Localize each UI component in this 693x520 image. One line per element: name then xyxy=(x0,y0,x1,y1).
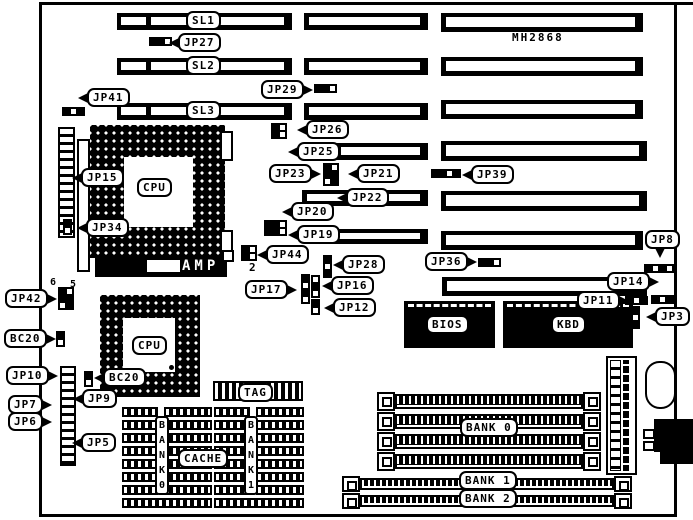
pointer-jp3 xyxy=(646,312,656,322)
jumper-pin xyxy=(64,227,71,234)
jumper-pin xyxy=(312,290,319,297)
callout-kbd-label: KBD xyxy=(551,315,586,334)
jumper-pin xyxy=(493,259,500,266)
cache-chip xyxy=(256,420,304,430)
jumper-pin xyxy=(302,275,309,282)
pin-number-6: 6 xyxy=(50,277,56,288)
cache-chip xyxy=(256,446,304,456)
cache-chip xyxy=(122,498,212,508)
simm-clip-mark xyxy=(588,457,598,467)
callout-jp19: JP19 xyxy=(297,225,340,244)
jumper-pin xyxy=(279,228,286,235)
cache-chip xyxy=(256,472,304,482)
cache-chip xyxy=(256,459,304,469)
pointer-jp7 xyxy=(42,400,52,410)
jumper-pin xyxy=(324,263,331,270)
jumper-pin xyxy=(272,228,279,235)
jumper-pin xyxy=(272,124,279,131)
slot-bar-4 xyxy=(304,58,428,75)
slot-bar-3 xyxy=(304,13,428,30)
simm-clip-left xyxy=(377,412,395,431)
slot-bar-13 xyxy=(441,191,647,211)
slot-bar-10 xyxy=(441,57,643,76)
jumper-pin xyxy=(272,131,279,138)
jp36-pins xyxy=(478,258,501,267)
callout-jp42: JP42 xyxy=(5,289,48,308)
slot-opening xyxy=(121,107,146,115)
jumper-pin xyxy=(666,265,673,272)
bank0-socket-4 xyxy=(377,452,601,471)
callout-jp15: JP15 xyxy=(81,168,124,187)
simm-contacts xyxy=(397,396,581,404)
slot-opening xyxy=(446,17,635,27)
pointer-jp25 xyxy=(288,147,298,157)
cache-chip xyxy=(214,498,304,508)
cpu1-socket-lever xyxy=(77,139,90,272)
jumper-pin xyxy=(652,265,659,272)
jumper-pin xyxy=(324,256,331,263)
callout-jp16: JP16 xyxy=(331,276,374,295)
jumper-pin xyxy=(59,288,66,295)
callout-bc20-left: BC20 xyxy=(4,329,47,348)
callout-bios-label: BIOS xyxy=(426,315,469,334)
callout-jp11: JP11 xyxy=(577,291,620,310)
jp17-pins xyxy=(301,274,310,304)
pointer-jp9 xyxy=(73,394,83,404)
cpu1-socket-key-top xyxy=(220,131,233,161)
callout-jp22: JP22 xyxy=(346,188,389,207)
jumper-pin xyxy=(242,246,249,253)
jumper-pin xyxy=(312,276,319,283)
slot-opening xyxy=(341,147,420,155)
pointer-jp27 xyxy=(169,38,179,48)
callout-jp9: JP9 xyxy=(82,389,117,408)
pointer-jp12 xyxy=(324,303,334,313)
slot-bar-9 xyxy=(441,13,643,32)
jumper-pin xyxy=(324,171,331,178)
motherboard-jumper-diagram: MH2868 AMP SL1SL2SL3JP27JP29JP41JP26JP25… xyxy=(0,0,693,520)
cache-chip xyxy=(164,420,212,430)
cache-chip xyxy=(256,485,304,495)
cpu2-pin1-dot xyxy=(169,365,174,370)
simm-clip-mark xyxy=(588,397,598,407)
callout-jp10: JP10 xyxy=(6,366,49,385)
pointer-jp8 xyxy=(655,248,665,258)
pointer-jp14 xyxy=(649,277,659,287)
callout-jp36: JP36 xyxy=(425,252,468,271)
cache-chip xyxy=(164,485,212,495)
simm-slot xyxy=(395,394,583,409)
callout-jp28: JP28 xyxy=(342,255,385,274)
callout-jp41: JP41 xyxy=(87,88,130,107)
simm-clip-left xyxy=(377,452,395,471)
pin-number-2: 2 xyxy=(249,261,256,274)
callout-cpu2-label: CPU xyxy=(132,336,167,355)
cache-chip xyxy=(122,446,158,456)
slot-opening xyxy=(309,107,420,115)
simm-slot xyxy=(395,454,583,469)
jumper-pin xyxy=(315,85,322,92)
jumper-pin xyxy=(632,314,639,321)
pointer-jp16 xyxy=(322,281,332,291)
jp20-jp19-pins xyxy=(264,220,287,236)
jumper-pin xyxy=(312,283,319,290)
jp26-pins xyxy=(271,123,287,139)
jumper-pin xyxy=(659,265,666,272)
simm-clip-mark xyxy=(347,481,357,491)
callout-bank0-label: BANK 0 xyxy=(460,418,518,437)
jumper-pin xyxy=(486,259,493,266)
simm-clip-mark xyxy=(382,417,392,427)
callout-jp5: JP5 xyxy=(81,433,116,452)
jumper-pin xyxy=(640,297,647,304)
pointer-jp19 xyxy=(288,230,298,240)
callout-slot-sl3: SL3 xyxy=(186,101,221,120)
simm-clip-mark xyxy=(588,417,598,427)
pin-number-5: 5 xyxy=(70,279,76,290)
jumper-pin xyxy=(331,171,338,178)
cache-chip xyxy=(122,459,158,469)
cache-chip xyxy=(164,472,212,482)
jp41-pins xyxy=(62,107,85,116)
jumper-pin xyxy=(453,170,460,177)
bottom-left-header-strip xyxy=(60,366,76,466)
jumper-pin xyxy=(85,372,92,379)
jp42-pins xyxy=(58,287,74,310)
jumper-pin xyxy=(432,170,439,177)
simm-clip-left xyxy=(342,493,360,509)
jumper-pin xyxy=(279,131,286,138)
pointer-bc20-cpu xyxy=(94,373,104,383)
slot-opening xyxy=(446,235,635,245)
slot-opening xyxy=(446,104,635,114)
pointer-jp29 xyxy=(303,85,313,95)
callout-jp17: JP17 xyxy=(245,280,288,299)
simm-clip-right xyxy=(614,493,632,509)
jumper-pin xyxy=(322,85,329,92)
jumper-pin xyxy=(312,307,319,314)
callout-bank2-label: BANK 2 xyxy=(459,489,517,508)
pointer-jp20 xyxy=(282,207,292,217)
callout-jp23: JP23 xyxy=(269,164,312,183)
simm-clip-left xyxy=(377,432,395,451)
jumper-pin xyxy=(331,164,338,171)
cache-chip xyxy=(122,472,158,482)
bc20-cpu-pins xyxy=(84,371,93,387)
callout-bank1-label: BANK 1 xyxy=(459,471,517,490)
board-top-edge-extension xyxy=(677,2,693,5)
jumper-pin xyxy=(70,108,77,115)
jumper-pin xyxy=(632,321,639,328)
cache-chip xyxy=(122,420,158,430)
bank0-socket-1 xyxy=(377,392,601,411)
bc20-left-pins xyxy=(56,331,65,347)
simm-clip-left xyxy=(377,392,395,411)
jumper-pin xyxy=(64,220,71,227)
callout-jp8: JP8 xyxy=(645,230,680,249)
slot-opening xyxy=(309,17,420,25)
jumper-pin xyxy=(265,221,272,228)
pointer-jp41 xyxy=(78,93,88,103)
pointer-jp26 xyxy=(297,125,307,135)
slot-opening xyxy=(446,145,639,156)
cache-chip xyxy=(256,407,304,417)
pointer-jp22 xyxy=(337,193,347,203)
callout-jp14: JP14 xyxy=(607,272,650,291)
simm-contacts xyxy=(397,456,581,464)
pointer-jp44 xyxy=(257,250,267,260)
simm-clip-mark xyxy=(382,457,392,467)
jumper-pin xyxy=(59,295,66,302)
jp28-pins xyxy=(323,255,332,278)
cache-chip xyxy=(164,433,212,443)
power-connector-pins-left xyxy=(610,360,621,471)
callout-jp25: JP25 xyxy=(297,142,340,161)
pointer-jp5 xyxy=(72,438,82,448)
callout-bc20-cpu: BC20 xyxy=(103,368,146,387)
slot-opening xyxy=(309,62,420,70)
jumper-pin xyxy=(633,297,640,304)
jumper-pin xyxy=(242,253,249,260)
jumper-pin xyxy=(150,38,157,45)
amp-label: AMP xyxy=(182,259,219,273)
jumper-pin xyxy=(59,302,66,309)
simm-contacts xyxy=(397,436,581,444)
simm-clip-right xyxy=(583,392,601,411)
jumper-pin xyxy=(659,296,666,303)
callout-jp26: JP26 xyxy=(306,120,349,139)
slot-opening xyxy=(121,62,146,70)
jp44-pins xyxy=(241,245,257,261)
jumper-pin xyxy=(479,259,486,266)
jumper-pin xyxy=(265,228,272,235)
amp-window xyxy=(147,260,180,272)
jumper-pin xyxy=(77,108,84,115)
jumper-pin xyxy=(279,221,286,228)
pointer-jp28 xyxy=(333,260,343,270)
simm-guide xyxy=(397,405,581,407)
simm-clip-right xyxy=(583,432,601,451)
jp34-pins xyxy=(63,219,72,235)
jumper-pin xyxy=(157,38,164,45)
slot-bar-5 xyxy=(304,103,428,120)
slot-bar-6 xyxy=(336,143,428,160)
cache-chip xyxy=(214,407,250,417)
pointer-jp15 xyxy=(72,173,82,183)
callout-jp44: JP44 xyxy=(266,245,309,264)
jumper-pin xyxy=(272,221,279,228)
pointer-jp17 xyxy=(287,285,297,295)
pointer-jp34 xyxy=(77,223,87,233)
callout-jp27: JP27 xyxy=(178,33,221,52)
callout-jp34: JP34 xyxy=(86,218,129,237)
simm-clip-mark xyxy=(382,437,392,447)
din-cutout xyxy=(654,452,660,464)
slot-opening xyxy=(446,195,639,206)
jumper-pin xyxy=(312,300,319,307)
jp16-pins xyxy=(311,275,320,298)
power-connector-pins-right xyxy=(623,360,629,471)
pointer-jp39 xyxy=(462,170,472,180)
cache-bank0-label: B A N K 0 xyxy=(155,416,169,495)
jumper-pin xyxy=(63,108,70,115)
jumper-pin xyxy=(324,178,331,185)
jp29-pins xyxy=(314,84,337,93)
jp8-pins xyxy=(644,264,674,273)
simm-clip-right xyxy=(583,412,601,431)
pointer-jp11 xyxy=(619,296,629,306)
power-connector xyxy=(606,356,637,475)
callout-jp12: JP12 xyxy=(333,298,376,317)
pointer-bc20-left xyxy=(46,334,56,344)
pointer-jp42 xyxy=(47,294,57,304)
callout-cache-label: CACHE xyxy=(178,449,228,468)
simm-clip-left xyxy=(342,476,360,492)
bios-chip-notch xyxy=(408,304,491,307)
jumper-pin xyxy=(324,164,331,171)
jp23-jp21-pins xyxy=(323,163,339,186)
board-model-text: MH2868 xyxy=(512,31,564,44)
cache-chip xyxy=(164,407,212,417)
jumper-pin xyxy=(66,302,73,309)
jp14-pins xyxy=(651,295,674,304)
jumper-pin xyxy=(645,265,652,272)
callout-jp20: JP20 xyxy=(291,202,334,221)
jumper-pin xyxy=(632,307,639,314)
simm-guide xyxy=(397,445,581,447)
jumper-pin xyxy=(324,270,331,277)
slot-bar-12 xyxy=(441,141,647,161)
pointer-jp36 xyxy=(467,257,477,267)
din-pin-bottom xyxy=(643,441,655,451)
jp3-pins xyxy=(631,306,640,329)
callout-jp39: JP39 xyxy=(471,165,514,184)
slot-opening xyxy=(121,17,146,25)
jumper-pin xyxy=(652,296,659,303)
jumper-pin xyxy=(85,379,92,386)
callout-jp21: JP21 xyxy=(357,164,400,183)
simm-clip-mark xyxy=(619,481,629,491)
simm-clip-right xyxy=(614,476,632,492)
jumper-pin xyxy=(249,246,256,253)
cache-bank1-label: B A N K 1 xyxy=(244,416,258,495)
slot-opening xyxy=(446,61,635,71)
simm-guide xyxy=(397,465,581,467)
jp12-pins xyxy=(311,299,320,315)
cache-chip xyxy=(256,433,304,443)
callout-jp6: JP6 xyxy=(8,412,43,431)
simm-clip-mark xyxy=(347,498,357,508)
slot-bar-11 xyxy=(441,100,643,119)
simm-clip-mark xyxy=(619,498,629,508)
pointer-jp21 xyxy=(348,169,358,179)
callout-slot-sl2: SL2 xyxy=(186,56,221,75)
din-pin-top xyxy=(643,429,655,439)
jumper-pin xyxy=(666,296,673,303)
pointer-jp6 xyxy=(42,417,52,427)
simm-clip-mark xyxy=(382,397,392,407)
amp-pin xyxy=(222,250,234,262)
jumper-pin xyxy=(331,178,338,185)
callout-cpu1-label: CPU xyxy=(137,178,172,197)
callout-jp29: JP29 xyxy=(261,80,304,99)
callout-tag-label: TAG xyxy=(238,383,273,402)
slot-bar-14 xyxy=(441,231,643,250)
jumper-pin xyxy=(329,85,336,92)
jumper-pin xyxy=(279,124,286,131)
jumper-pin xyxy=(302,289,309,296)
jumper-pin xyxy=(57,339,64,346)
simm-clip-right xyxy=(583,452,601,471)
callout-jp3: JP3 xyxy=(655,307,690,326)
cache-chip xyxy=(122,485,158,495)
pointer-jp10 xyxy=(48,371,58,381)
simm-clip-mark xyxy=(588,437,598,447)
pointer-jp23 xyxy=(311,169,321,179)
jp39-pins xyxy=(431,169,461,178)
jumper-pin xyxy=(302,282,309,289)
jumper-pin xyxy=(302,296,309,303)
jumper-pin xyxy=(249,253,256,260)
component-blob xyxy=(645,361,676,409)
cache-chip xyxy=(122,433,158,443)
jumper-pin xyxy=(66,295,73,302)
jumper-pin xyxy=(446,170,453,177)
callout-slot-sl1: SL1 xyxy=(186,11,221,30)
jumper-pin xyxy=(439,170,446,177)
cache-chip xyxy=(122,407,158,417)
jumper-pin xyxy=(57,332,64,339)
amp-regulator: AMP xyxy=(95,256,227,277)
